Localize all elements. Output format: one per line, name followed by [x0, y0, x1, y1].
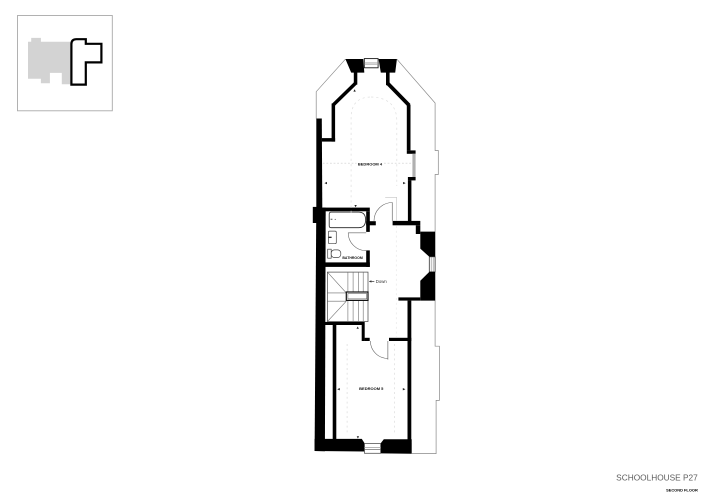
svg-text:SECOND FLOOR: SECOND FLOOR	[666, 488, 698, 493]
svg-text:Down: Down	[376, 279, 388, 284]
svg-text:BEDROOM 4: BEDROOM 4	[358, 162, 383, 167]
svg-text:SCHOOLHOUSE P27: SCHOOLHOUSE P27	[616, 473, 698, 483]
svg-text:BATHROOM: BATHROOM	[342, 256, 362, 260]
svg-text:BEDROOM 5: BEDROOM 5	[359, 386, 384, 391]
